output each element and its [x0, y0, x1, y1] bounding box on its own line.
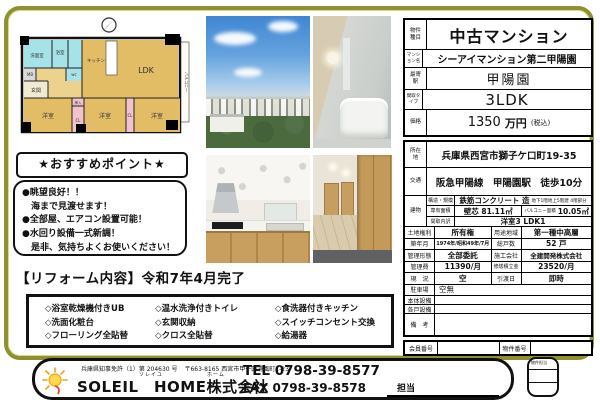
label-wc: wc — [71, 72, 76, 77]
row-building: 建物 構造・規模 鉄筋コンクリート 造 地下1階地上5階建 4階部分 専有面積 … — [405, 195, 591, 226]
row-label: 会員番号 — [405, 342, 438, 354]
unit-equipment — [435, 305, 591, 313]
row-main-equipment: 本体設備 — [405, 295, 591, 304]
remarks — [435, 314, 591, 335]
tel-number: TEL 0798-39-8577 — [243, 363, 380, 379]
property-staff-box: 物件担当 — [527, 357, 559, 397]
reform-item: ◇食洗器付きキッチン — [275, 303, 391, 317]
floor-plan: 洗面室 浴室 wc MB 玄関 キッチン LDK 洋室 洋室 洋室 CL CL … — [8, 10, 194, 150]
reform-item: ◇浴室乾燥機付きUB — [45, 303, 155, 317]
photo-view-from-balcony — [206, 16, 310, 148]
land-right: 所有権 — [435, 227, 491, 238]
bathroom-mirror — [343, 38, 350, 90]
row-access: 交通 阪急甲陽線 甲陽園駅 徒歩10分 — [405, 167, 591, 195]
hall-light — [330, 164, 336, 170]
row-parking: 駐車場 空無 — [405, 284, 591, 296]
label-kitchen: キッチン — [87, 58, 105, 64]
row-label: 管理形態 — [405, 250, 435, 261]
row-mansion-name: マンション名 シーアイマンション第二甲陽園 — [405, 49, 591, 67]
property-number-block: 会員番号 物件番号 — [403, 340, 593, 356]
balcony-area-cell: バルコニー面積 10.05㎡ — [521, 206, 591, 215]
label-bedroom2: 洋室 — [99, 112, 111, 120]
row-label: 建物 — [405, 196, 427, 226]
row-label: 現 況 — [405, 273, 435, 284]
company-bar: 兵庫県知事免許（1）第 204630 号 〒663-8165 西宮市甲子園浦風町… — [32, 358, 514, 400]
label-bath: 浴室 — [56, 49, 65, 56]
balcony-area-label: バルコニー面積 — [524, 208, 555, 214]
recommend-points-list: ●眺望良好！！ 海まで見渡せます！ ●全部屋、エアコン設置可能！ ●水回り設備一… — [13, 180, 187, 256]
kitchen-cabinets — [206, 231, 310, 263]
subrow-label: 構造・規模 — [427, 196, 455, 205]
repair-reserve: 23520/月 — [522, 262, 591, 273]
point-line: 海まで見渡せます！ — [22, 201, 183, 215]
reform-column: ◇食洗器付きキッチン ◇スイッチコンセント交換 ◇給湯器 — [275, 303, 391, 345]
property-type: 中古マンション — [427, 20, 591, 49]
staff-signature-line: 担当 — [387, 379, 499, 397]
reform-item: ◇スイッチコンセント交換 — [275, 317, 391, 331]
photo-kitchen — [206, 155, 310, 263]
photo-entrance-hall — [313, 155, 392, 263]
real-estate-flyer: 洗面室 浴室 wc MB 玄関 キッチン LDK 洋室 洋室 洋室 CL CL … — [0, 0, 600, 406]
management-fee: 11390/月 — [435, 262, 491, 273]
bathroom-light — [327, 52, 339, 64]
row-management-builder: 管理形態 全部委託 施工会社 全建開発株式会社 — [405, 249, 591, 261]
row-label: 備 考 — [405, 314, 435, 335]
row-station: 最寄駅 甲陽園 — [405, 67, 591, 89]
reform-item: ◇玄関収納 — [155, 317, 275, 331]
reform-heading: 【リフォーム内容】令和7年4月完了 — [16, 267, 388, 287]
label-mb: MB — [27, 72, 33, 77]
license-number: 兵庫県知事免許（1）第 204630 号 — [81, 366, 178, 373]
management-type: 全部委託 — [435, 250, 491, 261]
reform-column: ◇浴室乾燥機付きUB ◇洗面化粧台 ◇フローリング全貼替 — [45, 303, 155, 345]
member-no — [438, 342, 499, 354]
row-address: 所在地 兵庫県西宮市獅子ケ口町19-35 — [405, 142, 591, 167]
property-table: 物件種目 中古マンション マンション名 シーアイマンション第二甲陽園 最寄駅 甲… — [403, 18, 593, 356]
house-roof — [210, 114, 244, 132]
row-label: 所在地 — [405, 142, 427, 167]
layout-detail: 洋室3 LDK1 — [455, 217, 591, 226]
fax-number: FAX 0798-39-8578 — [243, 381, 366, 395]
reform-box: ◇浴室乾燥機付きUB ◇洗面化粧台 ◇フローリング全貼替 ◇温水洗浄付きトイレ … — [26, 294, 394, 348]
row-label: 各戸設備 — [405, 305, 435, 313]
entrance-mat — [313, 250, 392, 263]
row-label: 施工会社 — [491, 250, 522, 261]
row-built-units: 築年月 1974年/昭和49年/7月 総戸数 52 戸 — [405, 238, 591, 250]
row-remarks: 備 考 — [405, 313, 591, 335]
building-subrows: 構造・規模 鉄筋コンクリート 造 地下1階地上5階建 4階部分 専有面積 壁芯 … — [427, 196, 591, 226]
mansion-name: シーアイマンション第二甲陽園 — [423, 50, 591, 67]
subrow-layout-detail: 間取内訳 洋室3 LDK1 — [427, 216, 591, 226]
row-label: 駐車場 — [405, 285, 435, 296]
layout-type: 3LDK — [423, 90, 591, 109]
price: 1350 万円 (税込) — [427, 110, 591, 135]
row-label: 価格 — [405, 110, 427, 135]
label-oshiire: 押入 — [75, 100, 82, 105]
kitchen-window — [264, 203, 297, 221]
main-equipment — [435, 296, 591, 304]
structure: 鉄筋コンクリート 造 地下1階地上5階建 4階部分 — [455, 196, 591, 205]
price-value: 1350 — [468, 115, 501, 130]
row-status-handover: 現 況 空 引渡日 即時 — [405, 272, 591, 284]
room-ldk — [82, 40, 178, 98]
structure-value: 鉄筋コンクリート 造 — [459, 196, 529, 205]
entrance-storage-closet — [357, 155, 392, 254]
bathtub — [340, 98, 388, 138]
row-price: 価格 1350 万円 (税込) — [405, 109, 591, 135]
label-closet2: CL — [127, 113, 133, 118]
label-bedroom1: 洋室 — [42, 112, 54, 120]
balcony-area-value: 10.05㎡ — [558, 206, 589, 216]
row-label: 本体設備 — [405, 296, 435, 304]
built-date: 1974年/昭和49年/7月 — [435, 239, 491, 250]
company-name: SOLEIL HOME株式会社 — [77, 376, 268, 397]
row-label: 修繕積立金 — [491, 262, 522, 273]
property-detail-block: 所在地 兵庫県西宮市獅子ケ口町19-35 交通 阪急甲陽線 甲陽園駅 徒歩10分… — [403, 140, 593, 337]
row-label: 管理費 — [405, 262, 435, 273]
point-line: 是非、気持ちよくお使いください！ — [22, 242, 183, 256]
subrow-area: 専有面積 壁芯 81.11㎡ バルコニー面積 10.05㎡ — [427, 205, 591, 215]
zoning: 第一種中高層 — [522, 227, 591, 238]
row-label: 物件種目 — [405, 20, 427, 49]
reform-item: ◇フローリング全貼替 — [45, 330, 155, 344]
reform-item: ◇温水洗浄付きトイレ — [155, 303, 275, 317]
compass-icon — [102, 18, 116, 32]
row-land-zoning: 土地権利 所有権 用途地域 第一種中高層 — [405, 226, 591, 238]
nearest-station: 甲陽園 — [427, 68, 591, 89]
point-line: ●全部屋、エアコン設置可能！ — [22, 214, 183, 228]
staff-stamp-cell — [529, 370, 557, 383]
row-label: 築年月 — [405, 239, 435, 250]
label-closet1: CL — [75, 118, 81, 123]
reform-item: ◇クロス全貼替 — [155, 330, 275, 344]
cloud — [268, 21, 298, 32]
recommend-points-header: ★おすすめポイント★ — [16, 152, 188, 178]
label-washroom: 洗面室 — [30, 52, 44, 59]
property-no — [531, 342, 592, 354]
cloud — [214, 32, 256, 45]
row-label: 間取タイプ — [405, 90, 423, 109]
row-label: 総戸数 — [491, 239, 522, 250]
row-label: マンション名 — [405, 50, 423, 67]
point-line: ●水回り設備一式新調！ — [22, 228, 183, 242]
reform-item: ◇給湯器 — [275, 330, 391, 344]
subrow-label: 専有面積 — [427, 206, 455, 215]
price-unit: 万円 — [505, 115, 527, 131]
area-value: 壁芯 81.11㎡ — [464, 206, 513, 215]
subrow-label: 間取内訳 — [427, 217, 455, 226]
row-label: 最寄駅 — [405, 68, 427, 89]
row-member-property-no: 会員番号 物件番号 — [405, 342, 591, 354]
property-summary-block: 物件種目 中古マンション マンション名 シーアイマンション第二甲陽園 最寄駅 甲… — [403, 18, 593, 137]
handover-date: 即時 — [522, 273, 591, 284]
price-tax-note: (税込) — [531, 118, 550, 128]
row-fee-reserve: 管理費 11390/月 修繕積立金 23520/月 — [405, 261, 591, 273]
row-layout: 間取タイプ 3LDK — [405, 89, 591, 109]
property-staff-label: 物件担当 — [529, 359, 557, 370]
reform-item: ◇洗面化粧台 — [45, 317, 155, 331]
label-balcony: バルコニー — [184, 72, 189, 92]
parking: 空無 — [435, 285, 591, 296]
exclusive-area: 壁芯 81.11㎡ — [455, 206, 521, 215]
subrow-structure: 構造・規模 鉄筋コンクリート 造 地下1階地上5階建 4階部分 — [427, 196, 591, 205]
label-entrance: 玄関 — [31, 87, 41, 94]
row-label: 用途地域 — [491, 227, 522, 238]
builder: 全建開発株式会社 — [522, 250, 591, 261]
row-label: 土地権利 — [405, 227, 435, 238]
cooktop — [212, 222, 243, 229]
row-property-type: 物件種目 中古マンション — [405, 20, 591, 49]
row-label: 交通 — [405, 168, 427, 195]
row-label: 物件番号 — [499, 342, 531, 354]
reform-column: ◇温水洗浄付きトイレ ◇玄関収納 ◇クロス全貼替 — [155, 303, 275, 345]
bathroom-floor — [313, 139, 391, 148]
address: 兵庫県西宮市獅子ケ口町19-35 — [427, 142, 591, 167]
row-label: 引渡日 — [491, 273, 522, 284]
access: 阪急甲陽線 甲陽園駅 徒歩10分 — [427, 168, 591, 195]
label-ldk: LDK — [138, 66, 155, 75]
kitchen-counter — [106, 41, 117, 75]
label-bedroom3: 洋室 — [151, 112, 163, 120]
row-unit-equipment: 各戸設備 — [405, 304, 591, 313]
photo-bathroom — [313, 16, 391, 148]
current-status: 空 — [435, 273, 491, 284]
point-line: ●眺望良好！！ — [22, 187, 183, 201]
cloud — [234, 68, 262, 77]
hall-light — [343, 170, 349, 176]
structure-note: 地下1階地上5階建 4階部分 — [532, 198, 587, 204]
layout-detail-value: 洋室3 LDK1 — [501, 217, 546, 226]
total-units: 52 戸 — [522, 239, 591, 250]
soleil-sun-logo-icon — [42, 366, 72, 396]
